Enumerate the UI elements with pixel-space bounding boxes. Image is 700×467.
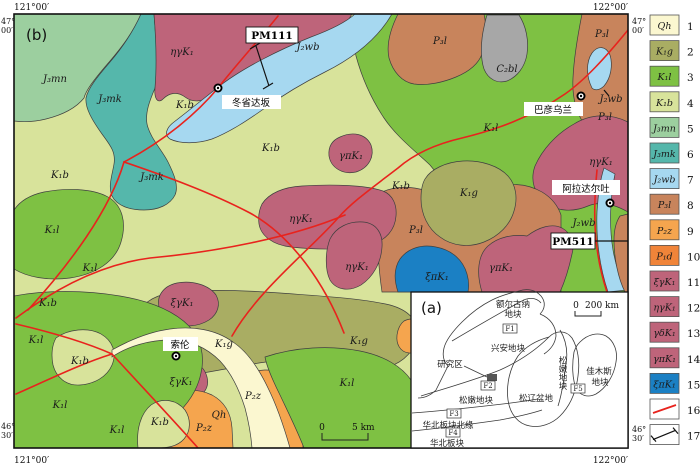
legend-item-number: 11 bbox=[687, 277, 700, 289]
legend-item-14: γπK₁ bbox=[650, 348, 679, 368]
unit-label: J₂wb bbox=[295, 42, 320, 53]
legend-item-number: 2 bbox=[687, 47, 694, 59]
coord-bottom-right: 122°00′ bbox=[593, 456, 628, 466]
unit-label: P₃l bbox=[408, 225, 423, 236]
fault-tag-f1: F1 bbox=[505, 325, 514, 333]
legend-swatch-label: K₁b bbox=[655, 98, 673, 109]
unit-label: K₁b bbox=[38, 298, 57, 309]
coord-lat-bot-left2: 30′ bbox=[1, 431, 13, 440]
legend-swatch-label: γδK₁ bbox=[653, 328, 675, 339]
xingan-block-label: 兴安地块 bbox=[491, 343, 526, 354]
study-area-label: 研究区 bbox=[437, 359, 463, 370]
coord-lat-bot-right2: 30′ bbox=[632, 434, 644, 443]
unit-label: P₃l bbox=[597, 112, 612, 123]
geological-map-figure: (b) J₃mnJ₃mkJ₃mkηγK₁J₂wbK₁bK₁bK₁bK₁lK₁lK… bbox=[0, 0, 700, 467]
panel-b-label: (b) bbox=[26, 26, 47, 44]
legend: Qh1K₁g2K₁l3K₁b4J₃mn5J₃mk6J₂wb7P₃l8P₂z9P₁… bbox=[650, 15, 700, 445]
coord-top-right: 122°00′ bbox=[593, 3, 628, 13]
location-marker bbox=[172, 352, 181, 361]
legend-swatch-label: K₁l bbox=[657, 72, 672, 83]
legend-item-10: P₁d bbox=[650, 245, 679, 265]
place-label: 索伦 bbox=[170, 339, 190, 351]
unit-label: K₁l bbox=[109, 425, 125, 436]
legend-item-number: 4 bbox=[687, 98, 694, 110]
place-label: 巴彦乌兰 bbox=[534, 104, 572, 116]
unit-label: K₁b bbox=[175, 100, 194, 111]
unit-label: ηγK₁ bbox=[289, 214, 312, 225]
unit-label: K₁l bbox=[339, 378, 355, 389]
coord-lat-bot-left: 46° bbox=[1, 422, 15, 431]
songnen-block-vertical-label: 松嫩地块 bbox=[557, 355, 567, 391]
fault-tag-f5: F5 bbox=[573, 385, 582, 393]
unit-label: γπK₁ bbox=[489, 263, 513, 274]
unit-label: K₁g bbox=[459, 188, 478, 199]
fault-tag-f3: F3 bbox=[449, 410, 458, 418]
coord-bottom-left: 121°00′ bbox=[14, 456, 49, 466]
unit-label: γπK₁ bbox=[339, 151, 363, 162]
legend-item-number: 1 bbox=[687, 21, 694, 33]
unit-label: K₁l bbox=[28, 335, 44, 346]
location-marker bbox=[606, 199, 615, 208]
legend-item-7: J₂wb bbox=[650, 169, 679, 189]
unit-label: K₁b bbox=[70, 356, 89, 367]
legend-swatch-label: K₁g bbox=[655, 47, 673, 58]
legend-swatch-label: J₂wb bbox=[652, 175, 676, 186]
legend-item-4: K₁b bbox=[650, 92, 679, 112]
songliao-basin-label: 松辽盆地 bbox=[519, 393, 554, 404]
unit-label: ηγK₁ bbox=[589, 157, 612, 168]
unit-label: K₁g bbox=[349, 336, 368, 347]
place-label: 阿拉达尔吐 bbox=[562, 183, 610, 195]
legend-item-number: 15 bbox=[687, 379, 700, 391]
legend-item-number: 5 bbox=[687, 123, 694, 135]
unit-label: C₂bl bbox=[496, 64, 517, 75]
study-area-marker bbox=[487, 374, 497, 381]
legend-item-number: 13 bbox=[687, 328, 700, 340]
coord-top-left: 121°00′ bbox=[14, 3, 49, 13]
unit-label: K₁l bbox=[52, 400, 68, 411]
legend-swatch-label: Qh bbox=[658, 21, 672, 32]
legend-item-number: 6 bbox=[687, 149, 694, 161]
unit-label: ξγK₁ bbox=[171, 298, 194, 309]
coord-lat-bot-right: 46° bbox=[632, 425, 646, 434]
legend-swatch-label: P₂z bbox=[656, 226, 673, 237]
legend-item-1: Qh bbox=[650, 15, 679, 35]
legend-item-8: P₃l bbox=[650, 194, 679, 214]
legend-swatch-label: ξγK₁ bbox=[654, 277, 676, 288]
unit-label: K₁b bbox=[150, 417, 169, 428]
coord-lat-top-right2: 00′ bbox=[632, 26, 644, 35]
unit-label: K₁l bbox=[82, 263, 98, 274]
unit-label: ξγK₁ bbox=[170, 377, 193, 388]
legend-item-number: 17 bbox=[687, 431, 700, 443]
legend-item-16 bbox=[650, 399, 679, 419]
legend-item-6: J₃mk bbox=[650, 143, 679, 163]
legend-item-number: 12 bbox=[687, 303, 700, 315]
fault-tag-f4: F4 bbox=[448, 429, 458, 437]
unit-label: K₁l bbox=[44, 225, 60, 236]
legend-item-2: K₁g bbox=[650, 41, 679, 61]
unit-label: J₃mn bbox=[41, 74, 67, 85]
legend-item-number: 16 bbox=[687, 405, 700, 417]
legend-item-12: ηγK₁ bbox=[650, 297, 679, 317]
legend-item-number: 7 bbox=[687, 175, 694, 187]
unit-label: P₃l bbox=[432, 36, 447, 47]
legend-item-17 bbox=[650, 425, 679, 445]
scale-zero: 0 bbox=[319, 423, 325, 433]
section-label: PM111 bbox=[251, 30, 292, 42]
unit-label: P₂z bbox=[195, 423, 213, 434]
unit-label: J₃mk bbox=[96, 94, 122, 105]
coord-lat-top-left: 47° bbox=[1, 17, 15, 26]
coord-lat-top-right: 47° bbox=[632, 17, 646, 26]
legend-item-number: 8 bbox=[687, 200, 694, 212]
erguna-block-label2: 地块 bbox=[504, 309, 522, 320]
unit-label: J₂wb bbox=[571, 218, 596, 229]
unit-label: P₃l bbox=[594, 29, 609, 40]
legend-item-15: ξπK₁ bbox=[650, 373, 679, 393]
scale-end: 5 km bbox=[352, 423, 375, 433]
legend-swatch-label: P₃l bbox=[657, 200, 671, 211]
unit-label: K₁l bbox=[483, 123, 499, 134]
legend-item-9: P₂z bbox=[650, 220, 679, 240]
unit-label: ξπK₁ bbox=[425, 272, 449, 283]
panel-a-label: (a) bbox=[421, 299, 442, 317]
unit-label: J₃mk bbox=[138, 172, 164, 183]
legend-swatch-label: ηγK₁ bbox=[653, 303, 675, 314]
location-marker bbox=[577, 92, 586, 101]
jiamusi-block-label2: 地块 bbox=[591, 377, 609, 388]
unit-label: ηγK₁ bbox=[170, 47, 193, 58]
legend-item-number: 14 bbox=[687, 354, 700, 366]
erguna-block-label: 额尔古纳 bbox=[496, 299, 530, 310]
legend-item-11: ξγK₁ bbox=[650, 271, 679, 291]
ncc-label: 华北板块 bbox=[430, 438, 465, 449]
section-label: PM511 bbox=[552, 236, 593, 248]
inset-scale-zero: 0 bbox=[573, 301, 579, 311]
inset-scale-end: 200 km bbox=[585, 301, 619, 311]
legend-item-3: K₁l bbox=[650, 66, 679, 86]
coord-lat-top-left2: 00′ bbox=[1, 26, 13, 35]
legend-swatch-label: P₁d bbox=[655, 251, 672, 262]
legend-item-5: J₃mn bbox=[650, 117, 679, 137]
legend-swatch-label: γπK₁ bbox=[653, 354, 676, 365]
jiamusi-block-label: 佳木斯 bbox=[586, 366, 612, 377]
legend-swatch-label: J₃mk bbox=[651, 149, 676, 160]
unit-label: K₁b bbox=[50, 170, 69, 181]
legend-item-13: γδK₁ bbox=[650, 322, 679, 342]
unit-label: Qh bbox=[212, 410, 227, 421]
legend-item-number: 10 bbox=[687, 251, 700, 263]
fault-tag-f2: F2 bbox=[483, 382, 492, 390]
location-marker bbox=[214, 84, 223, 93]
unit-label: K₁b bbox=[261, 143, 280, 154]
unit-label: P₂z bbox=[244, 391, 262, 402]
legend-item-number: 9 bbox=[687, 226, 694, 238]
inset-map: (a) 0 200 km 额尔古纳 地块 兴安地块 bbox=[411, 290, 628, 449]
geologic-map: (b) J₃mnJ₃mkJ₃mkηγK₁J₂wbK₁bK₁bK₁bK₁lK₁lK… bbox=[0, 0, 700, 467]
legend-swatch-label: J₃mn bbox=[651, 123, 676, 134]
unit-label: ηγK₁ bbox=[345, 262, 368, 273]
place-label: 冬省达坂 bbox=[232, 97, 271, 109]
unit-label: K₁b bbox=[391, 181, 410, 192]
songnen-block-label: 松嫩地块 bbox=[459, 395, 494, 406]
legend-swatch-label: ξπK₁ bbox=[653, 379, 675, 390]
unit-label: K₁g bbox=[214, 339, 233, 350]
unit-label: J₂wb bbox=[598, 94, 623, 105]
legend-item-number: 3 bbox=[687, 72, 694, 84]
